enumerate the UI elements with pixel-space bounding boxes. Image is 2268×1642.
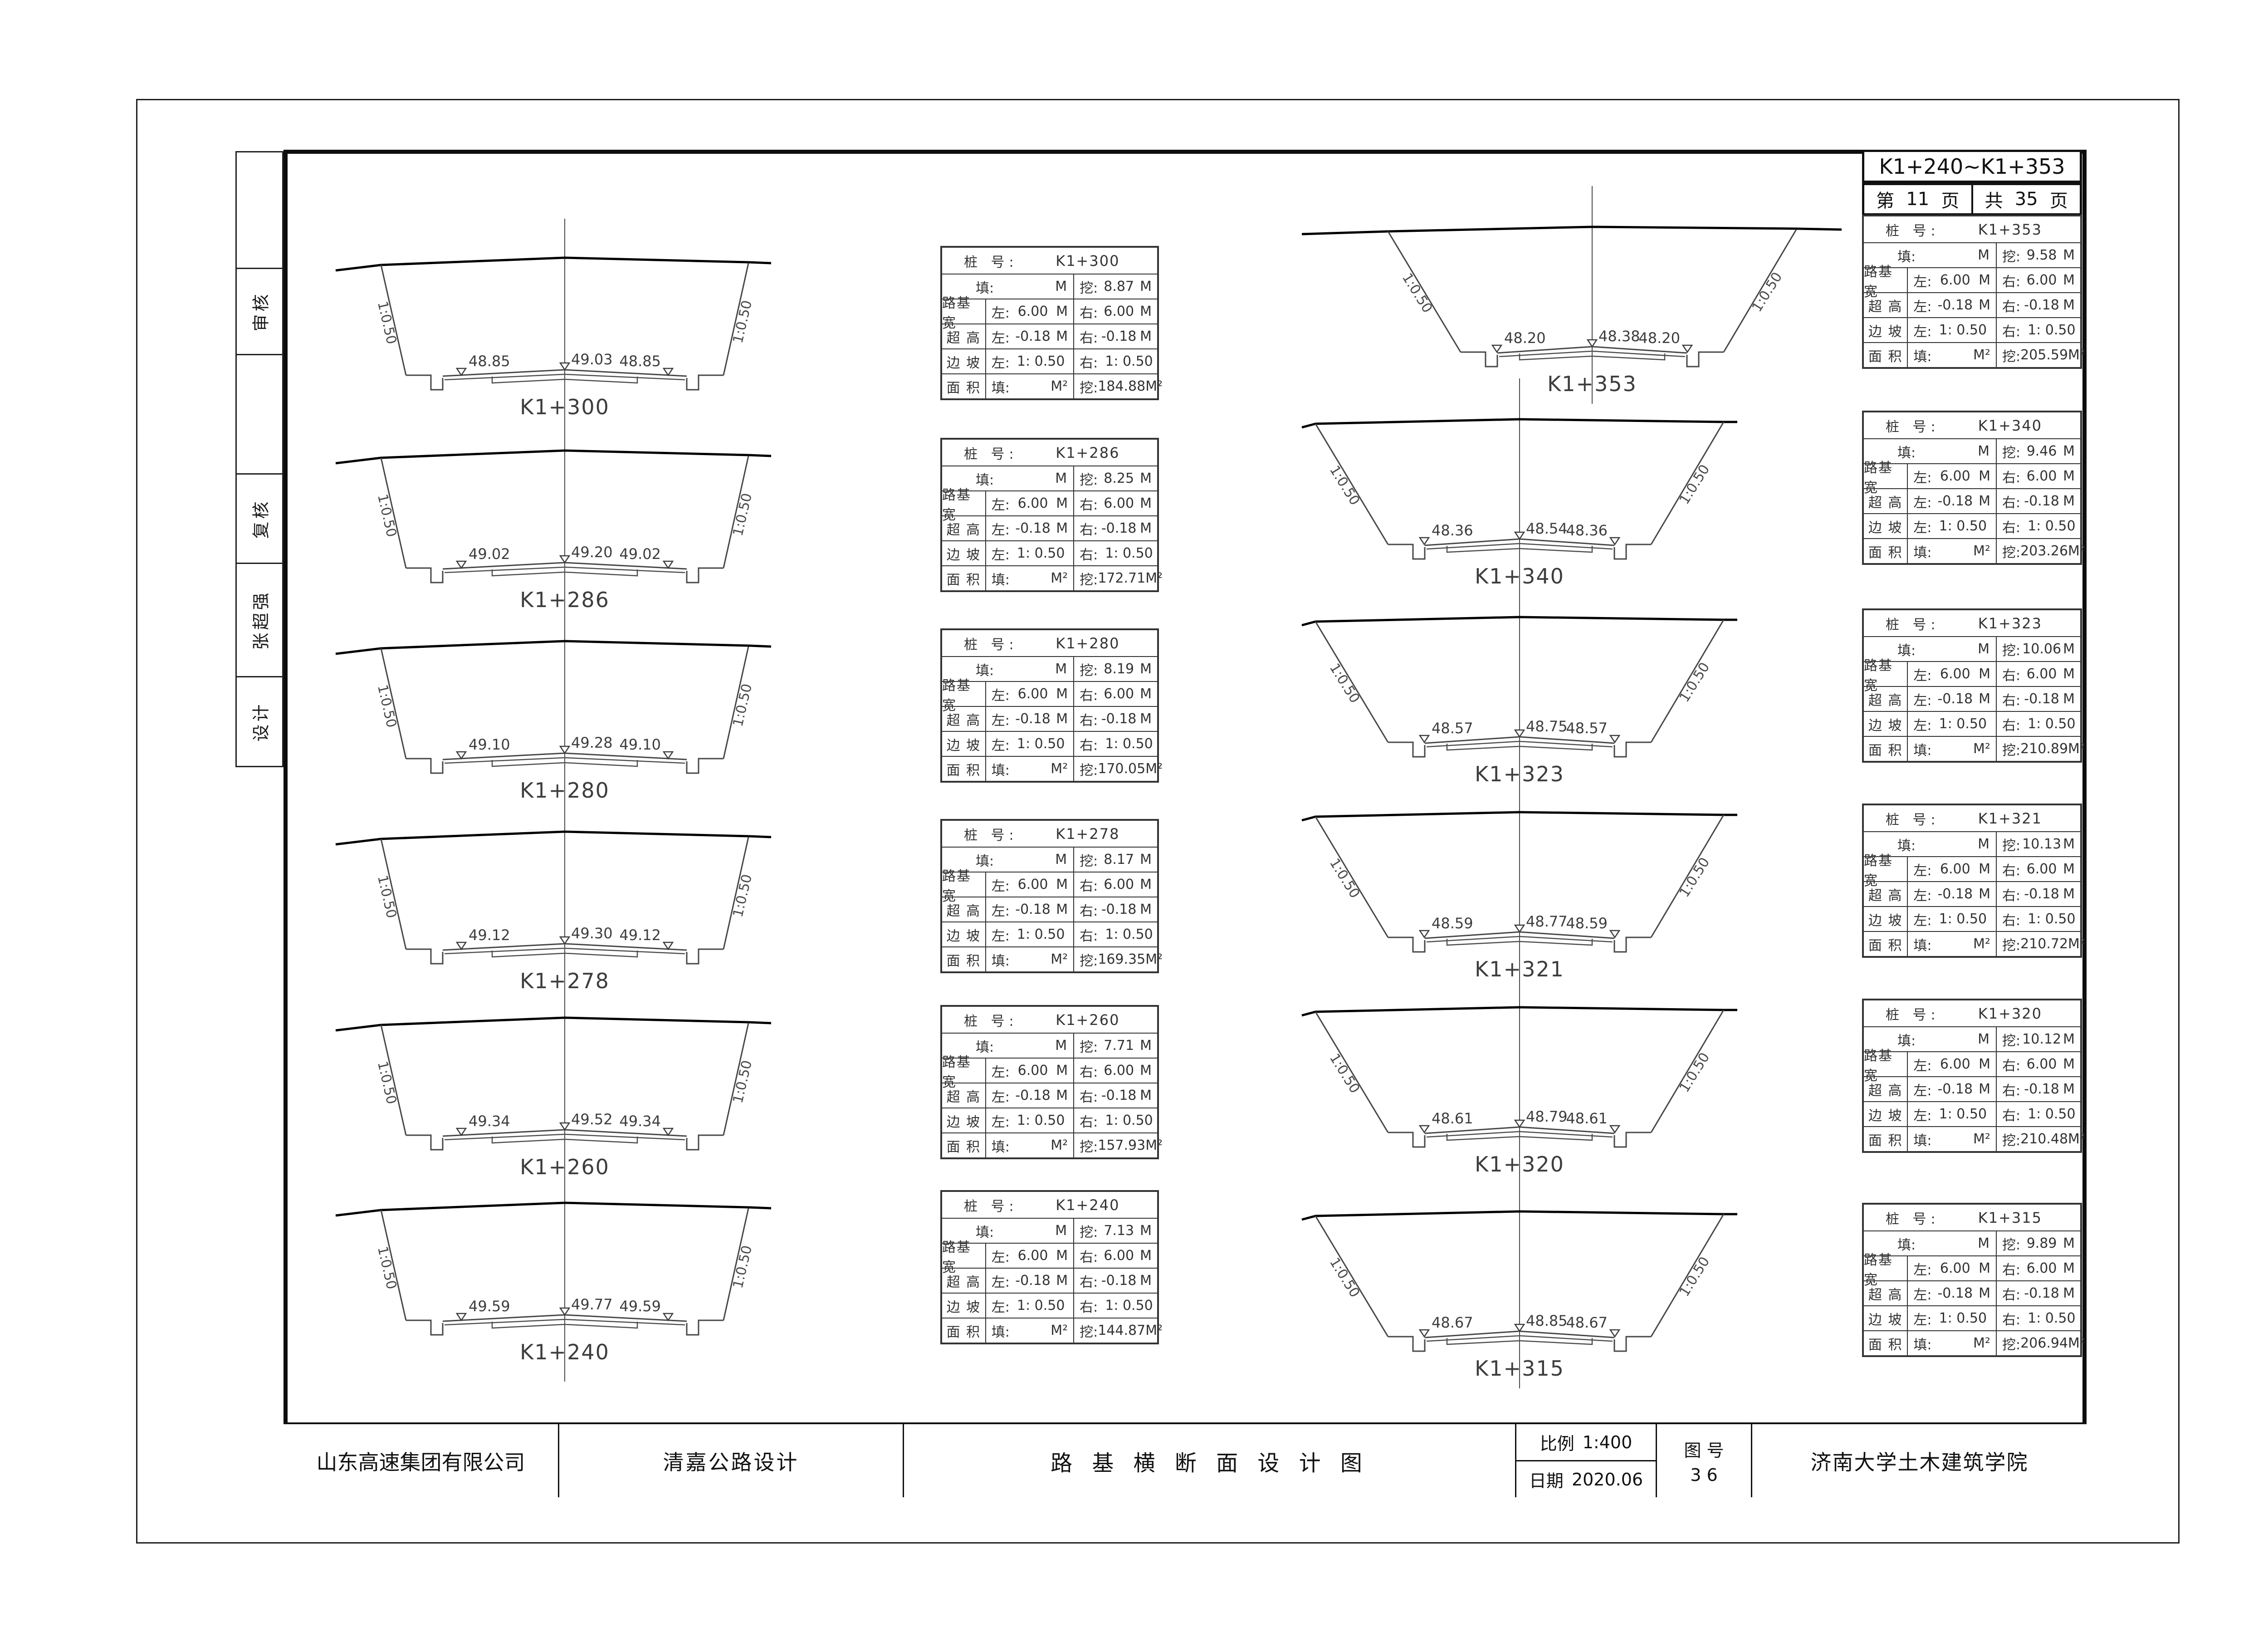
super-left-cell: 左: -0.18 M	[985, 1083, 1073, 1108]
side-ditch-right	[687, 759, 723, 773]
super-left-cell: 左: -0.18 M	[1907, 687, 1996, 711]
cross-section-wrap-K1+315: 48.67 48.85 48.67 1:0.50 1:0.50 K1+315	[1225, 1165, 1814, 1419]
area-row: 面 积 填: M² 挖: 172.71 M²	[942, 565, 1157, 590]
width-right-cell: 右: 6.00 M	[1996, 662, 2080, 686]
scale-label: 比例	[1540, 1430, 1574, 1455]
station-value: K1+260	[1018, 1011, 1157, 1029]
slope-row: 边 坡 左: 1: 0.50 右: 1: 0.50	[1864, 1305, 2080, 1330]
superelevation-row: 超 高 左: -0.18 M 右: -0.18 M	[942, 323, 1157, 348]
slope-ratio-left: 1:0.50	[374, 300, 400, 346]
scale-value: 1:400	[1583, 1432, 1633, 1452]
slope-ratio-right: 1:0.50	[730, 299, 755, 345]
side-ditch-left	[406, 759, 443, 773]
side-ditch-left	[406, 949, 443, 964]
level-mark-icon	[1610, 931, 1619, 937]
elevation-right: 48.67	[1566, 1314, 1608, 1331]
elevation-right: 49.59	[619, 1298, 661, 1315]
super-right-cell: 右: -0.18 M	[1073, 324, 1157, 348]
station-row: 桩 号: K1+300	[942, 248, 1157, 274]
cut-value: 8.87	[1098, 279, 1140, 294]
elevation-left: 48.20	[1504, 329, 1546, 347]
width-row: 路基宽 左: 6.00 M 右: 6.00 M	[1864, 661, 2080, 686]
station-label: 桩 号:	[1886, 1004, 1940, 1024]
ground-line	[336, 258, 771, 270]
elevation-left: 48.59	[1432, 915, 1473, 932]
superelevation-row: 超 高 左: -0.18 M 右: -0.18 M	[1864, 1076, 2080, 1101]
level-mark-icon	[457, 368, 466, 375]
station-label: 桩 号:	[1886, 416, 1940, 436]
slope-ratio-right: 1:0.50	[730, 1059, 755, 1105]
width-left-cell: 左: 6.00 M	[985, 1059, 1073, 1083]
area-fill-cell: 填: M²	[1907, 737, 1996, 761]
superelevation-row: 超 高 左: -0.18 M 右: -0.18 M	[942, 1083, 1157, 1108]
side-ditch-left	[1388, 1132, 1425, 1147]
area-fill-cell: 填: M²	[985, 947, 1073, 971]
side-ditch-left	[1461, 352, 1497, 367]
elevation-right: 49.02	[619, 545, 661, 563]
slope-left-cell: 左: 1: 0.50	[985, 922, 1073, 946]
slope-ratio-right: 1:0.50	[730, 1244, 755, 1290]
width-left-cell: 左: 6.00 M	[985, 1244, 1073, 1268]
width-row: 路基宽 左: 6.00 M 右: 6.00 M	[1864, 856, 2080, 881]
slope-right-cell: 右: 1: 0.50	[1996, 1102, 2080, 1126]
super-right-cell: 右: -0.18 M	[1073, 897, 1157, 921]
section-table-K1+353: 桩 号: K1+353 填: M 挖: 9.58 M 路基宽 左: 6.00 M…	[1862, 215, 2082, 369]
level-mark-icon	[664, 752, 673, 759]
super-left-cell: 左: -0.18 M	[985, 516, 1073, 540]
cut-value: 10.13	[2020, 836, 2063, 852]
section-table-K1+278: 桩 号: K1+278 填: M 挖: 8.17 M 路基宽 左: 6.00 M…	[940, 819, 1159, 973]
width-row: 路基宽 左: 6.00 M 右: 6.00 M	[942, 490, 1157, 515]
cut-cell: 挖: 10.12 M	[1996, 1027, 2080, 1051]
slope-ratio-right: 1:0.50	[1749, 270, 1786, 315]
cut-value: 9.58	[2020, 247, 2063, 263]
elevation-left: 48.61	[1432, 1110, 1473, 1127]
slope-right-cell: 右: 1: 0.50	[1996, 318, 2080, 342]
station-label: K1+315	[1475, 1356, 1564, 1381]
scale-date-cell: 比例 1:400 日期 2020.06	[1515, 1424, 1656, 1497]
side-ditch-left	[1388, 742, 1425, 757]
elevation-left: 48.85	[469, 353, 510, 370]
slope-row: 边 坡 左: 1: 0.50 右: 1: 0.50	[942, 1293, 1157, 1318]
super-left-cell: 左: -0.18 M	[1907, 293, 1996, 317]
elevation-center: 48.79	[1526, 1108, 1568, 1125]
elevation-center: 48.75	[1526, 718, 1568, 735]
width-right-cell: 右: 6.00 M	[1996, 857, 2080, 881]
width-right-cell: 右: 6.00 M	[1073, 491, 1157, 515]
station-row: 桩 号: K1+340	[1864, 412, 2080, 438]
station-label: 桩 号:	[964, 1010, 1018, 1030]
ground-line	[336, 641, 771, 654]
area-row: 面 积 填: M² 挖: 170.05 M²	[942, 756, 1157, 781]
area-cut-cell: 挖: 157.93 M²	[1073, 1133, 1157, 1157]
super-right-cell: 右: -0.18 M	[1996, 489, 2080, 513]
station-value: K1+240	[1018, 1196, 1157, 1214]
section-table-K1+280: 桩 号: K1+280 填: M 挖: 8.19 M 路基宽 左: 6.00 M…	[940, 628, 1159, 783]
station-value: K1+340	[1940, 417, 2080, 434]
width-left-cell: 左: 6.00 M	[1907, 662, 1996, 686]
elevation-right: 48.57	[1566, 720, 1608, 737]
cut-cell: 挖: 7.71 M	[1073, 1034, 1157, 1058]
area-row: 面 积 填: M² 挖: 210.72 M²	[1864, 931, 2080, 956]
section-table-K1+323: 桩 号: K1+323 填: M 挖: 10.06 M 路基宽 左: 6.00 …	[1862, 608, 2082, 763]
super-right-cell: 右: -0.18 M	[1996, 687, 2080, 711]
level-mark-icon	[664, 942, 673, 949]
elevation-left: 49.12	[469, 926, 510, 944]
slope-ratio-right: 1:0.50	[730, 682, 755, 728]
slope-left-cell: 左: 1: 0.50	[1907, 1306, 1996, 1330]
cut-value: 7.13	[1098, 1223, 1140, 1239]
side-ditch-right	[1614, 742, 1651, 757]
ground-line	[336, 832, 771, 844]
title-block: 山东高速集团有限公司 清嘉公路设计 路 基 横 断 面 设 计 图 比例 1:4…	[283, 1422, 2087, 1497]
width-right-cell: 右: 6.00 M	[1996, 464, 2080, 488]
section-table-K1+320: 桩 号: K1+320 填: M 挖: 10.12 M 路基宽 左: 6.00 …	[1862, 999, 2082, 1153]
area-fill-cell: 填: M²	[1907, 932, 1996, 956]
station-value: K1+315	[1940, 1209, 2080, 1226]
elevation-center: 49.77	[571, 1296, 613, 1313]
slope-left-cell: 左: 1: 0.50	[1907, 1102, 1996, 1126]
elevation-center: 48.54	[1526, 520, 1568, 537]
elevation-right: 49.10	[619, 736, 661, 753]
area-fill-cell: 填: M²	[1907, 1331, 1996, 1355]
cut-cell: 挖: 9.46 M	[1996, 439, 2080, 463]
level-mark-icon	[1515, 925, 1524, 932]
elevation-center: 48.77	[1526, 913, 1568, 930]
side-ditch-left	[406, 1320, 443, 1335]
slope-row: 边 坡 左: 1: 0.50 右: 1: 0.50	[1864, 317, 2080, 342]
slope-ratio-right: 1:0.50	[1677, 855, 1713, 900]
slope-left-cell: 左: 1: 0.50	[1907, 318, 1996, 342]
level-mark-icon	[560, 1308, 569, 1315]
slope-row: 边 坡 左: 1: 0.50 右: 1: 0.50	[942, 540, 1157, 565]
width-left-cell: 左: 6.00 M	[1907, 268, 1996, 292]
superelevation-row: 超 高 左: -0.18 M 右: -0.18 M	[1864, 488, 2080, 513]
station-value: K1+280	[1018, 635, 1157, 652]
level-mark-icon	[664, 1128, 673, 1135]
slope-ratio-left: 1:0.50	[374, 1060, 400, 1106]
elevation-left: 48.57	[1432, 720, 1473, 737]
institute-cell: 济南大学土木建筑学院	[1751, 1424, 2087, 1497]
station-label: 桩 号:	[964, 824, 1018, 844]
date-label: 日期	[1529, 1467, 1564, 1492]
slope-left-cell: 左: 1: 0.50	[1907, 907, 1996, 931]
area-row: 面 积 填: M² 挖: 203.26 M²	[1864, 538, 2080, 563]
level-mark-icon	[457, 561, 466, 568]
area-fill-cell: 填: M²	[985, 566, 1073, 590]
area-fill-cell: 填: M²	[1907, 1127, 1996, 1151]
slope-right-cell: 右: 1: 0.50	[1996, 712, 2080, 736]
super-left-cell: 左: -0.18 M	[985, 324, 1073, 348]
superelevation-row: 超 高 左: -0.18 M 右: -0.18 M	[1864, 292, 2080, 317]
elevation-left: 49.34	[469, 1113, 510, 1130]
side-ditch-right	[687, 1320, 723, 1335]
level-mark-icon	[560, 556, 569, 563]
width-right-cell: 右: 6.00 M	[1073, 872, 1157, 897]
slope-ratio-left: 1:0.50	[1326, 463, 1363, 508]
elevation-right: 48.59	[1566, 915, 1608, 932]
area-row: 面 积 填: M² 挖: 169.35 M²	[942, 946, 1157, 971]
slope-ratio-left: 1:0.50	[1399, 270, 1436, 316]
area-cut-cell: 挖: 184.88 M²	[1073, 374, 1157, 398]
width-row: 路基宽 左: 6.00 M 右: 6.00 M	[1864, 1051, 2080, 1076]
cut-cell: 挖: 8.19 M	[1073, 657, 1157, 681]
elevation-center: 49.03	[571, 351, 613, 368]
slope-left-cell: 左: 1: 0.50	[1907, 514, 1996, 538]
slope-ratio-right: 1:0.50	[1677, 660, 1713, 705]
cut-value: 9.89	[2020, 1235, 2063, 1251]
cut-cell: 挖: 10.13 M	[1996, 832, 2080, 856]
station-label: 桩 号:	[964, 251, 1018, 271]
page-info-row: 第 11 页 共 35 页	[1862, 183, 2082, 216]
station-value: K1+278	[1018, 825, 1157, 843]
ground-line	[336, 451, 771, 463]
level-mark-icon	[664, 561, 673, 568]
level-mark-icon	[560, 363, 569, 370]
slope-ratio-left: 1:0.50	[1326, 1255, 1363, 1300]
station-label: 桩 号:	[1886, 1208, 1940, 1228]
area-row: 面 积 填: M² 挖: 205.59 M²	[1864, 342, 2080, 367]
station-row: 桩 号: K1+320	[1864, 1000, 2080, 1026]
width-right-cell: 右: 6.00 M	[1996, 1256, 2080, 1280]
date-row: 日期 2020.06	[1516, 1461, 1656, 1497]
side-ditch-right	[1687, 352, 1724, 367]
cut-value: 8.19	[1098, 661, 1140, 677]
station-row: 桩 号: K1+286	[942, 440, 1157, 466]
superelevation-row: 超 高 左: -0.18 M 右: -0.18 M	[1864, 686, 2080, 711]
slope-right-cell: 右: 1: 0.50	[1073, 541, 1157, 565]
superelevation-row: 超 高 左: -0.18 M 右: -0.18 M	[942, 515, 1157, 540]
elevation-left: 49.59	[469, 1298, 510, 1315]
level-mark-icon	[1610, 1330, 1619, 1337]
elevation-center: 49.52	[571, 1111, 613, 1128]
level-mark-icon	[664, 1314, 673, 1320]
slope-left-cell: 左: 1: 0.50	[1907, 712, 1996, 736]
station-label: 桩 号:	[1886, 220, 1940, 240]
width-left-cell: 左: 6.00 M	[1907, 857, 1996, 881]
slope-left-cell: 左: 1: 0.50	[985, 349, 1073, 373]
area-cut-cell: 挖: 144.87 M²	[1073, 1319, 1157, 1343]
station-label: 桩 号:	[964, 1195, 1018, 1215]
ground-line	[1302, 227, 1842, 234]
slope-row: 边 坡 左: 1: 0.50 右: 1: 0.50	[1864, 906, 2080, 931]
station-value: K1+323	[1940, 615, 2080, 632]
width-row: 路基宽 左: 6.00 M 右: 6.00 M	[1864, 267, 2080, 292]
width-left-cell: 左: 6.00 M	[985, 491, 1073, 515]
side-ditch-left	[406, 1135, 443, 1150]
station-label: 桩 号:	[1886, 613, 1940, 633]
station-row: 桩 号: K1+260	[942, 1007, 1157, 1033]
level-mark-icon	[1610, 1126, 1619, 1132]
station-label: 桩 号:	[1886, 809, 1940, 828]
area-fill-cell: 填: M²	[1907, 343, 1996, 367]
elevation-center: 49.20	[571, 544, 613, 561]
level-mark-icon	[1515, 532, 1524, 539]
slope-ratio-left: 1:0.50	[1326, 856, 1363, 901]
elevation-right: 48.61	[1566, 1110, 1608, 1127]
sidebar-label: 审核	[247, 291, 272, 331]
level-mark-icon	[1492, 345, 1501, 352]
area-cut-cell: 挖: 210.48 M²	[1996, 1127, 2080, 1151]
station-range-box: K1+240~K1+353	[1862, 150, 2082, 183]
area-fill-cell: 填: M²	[985, 757, 1073, 781]
area-fill-cell: 填: M²	[1907, 539, 1996, 563]
station-row: 桩 号: K1+353	[1864, 216, 2080, 242]
slope-ratio-right: 1:0.50	[1677, 1254, 1713, 1299]
total-number: 35	[2015, 189, 2038, 210]
super-right-cell: 右: -0.18 M	[1996, 1077, 2080, 1101]
figure-number: 3 6	[1690, 1465, 1717, 1485]
area-fill-cell: 填: M²	[985, 1133, 1073, 1157]
side-ditch-right	[1614, 1132, 1651, 1147]
slope-right-cell: 右: 1: 0.50	[1996, 907, 2080, 931]
sidebar-label: 复核	[247, 499, 272, 539]
total-suffix: 页	[2050, 186, 2068, 212]
width-right-cell: 右: 6.00 M	[1073, 1059, 1157, 1083]
station-row: 桩 号: K1+321	[1864, 805, 2080, 831]
slope-ratio-right: 1:0.50	[1677, 462, 1713, 507]
station-value: K1+286	[1018, 444, 1157, 461]
level-mark-icon	[1420, 1330, 1429, 1337]
super-right-cell: 右: -0.18 M	[1996, 293, 2080, 317]
cut-value: 9.46	[2020, 443, 2063, 459]
side-ditch-right	[687, 568, 723, 583]
super-left-cell: 左: -0.18 M	[1907, 1281, 1996, 1305]
slope-ratio-left: 1:0.50	[1326, 661, 1363, 706]
superelevation-row: 超 高 左: -0.18 M 右: -0.18 M	[942, 706, 1157, 731]
cut-cell: 挖: 9.89 M	[1996, 1231, 2080, 1255]
width-row: 路基宽 左: 6.00 M 右: 6.00 M	[942, 872, 1157, 897]
level-mark-icon	[1420, 1126, 1429, 1132]
width-left-cell: 左: 6.00 M	[1907, 1052, 1996, 1076]
sidebar-label: 张超强	[247, 590, 272, 650]
superelevation-row: 超 高 左: -0.18 M 右: -0.18 M	[1864, 881, 2080, 906]
station-value: K1+321	[1940, 810, 2080, 827]
slope-row: 边 坡 左: 1: 0.50 右: 1: 0.50	[942, 348, 1157, 373]
section-table-K1+321: 桩 号: K1+321 填: M 挖: 10.13 M 路基宽 左: 6.00 …	[1862, 804, 2082, 958]
area-row: 面 积 填: M² 挖: 210.89 M²	[1864, 736, 2080, 761]
side-ditch-left	[1388, 937, 1425, 952]
area-cut-cell: 挖: 210.72 M²	[1996, 932, 2080, 956]
cut-value: 10.06	[2020, 641, 2063, 657]
station-value: K1+353	[1940, 221, 2080, 238]
elevation-right: 48.20	[1638, 329, 1680, 347]
station-range-label: K1+240~K1+353	[1879, 154, 2065, 179]
level-mark-icon	[664, 368, 673, 375]
section-table-K1+315: 桩 号: K1+315 填: M 挖: 9.89 M 路基宽 左: 6.00 M…	[1862, 1203, 2082, 1357]
super-right-cell: 右: -0.18 M	[1073, 1083, 1157, 1108]
slope-right-cell: 右: 1: 0.50	[1073, 1108, 1157, 1132]
cut-cell: 挖: 10.06 M	[1996, 637, 2080, 661]
area-cut-cell: 挖: 203.26 M²	[1996, 539, 2080, 563]
super-left-cell: 左: -0.18 M	[1907, 882, 1996, 906]
area-cut-cell: 挖: 172.71 M²	[1073, 566, 1157, 590]
cut-cell: 挖: 8.17 M	[1073, 848, 1157, 872]
width-right-cell: 右: 6.00 M	[1996, 1052, 2080, 1076]
section-table-K1+340: 桩 号: K1+340 填: M 挖: 9.46 M 路基宽 左: 6.00 M…	[1862, 411, 2082, 565]
area-cut-cell: 挖: 205.59 M²	[1996, 343, 2080, 367]
station-label: K1+240	[520, 1340, 610, 1364]
width-row: 路基宽 左: 6.00 M 右: 6.00 M	[942, 1243, 1157, 1268]
station-label: 桩 号:	[964, 633, 1018, 653]
cut-value: 7.71	[1098, 1038, 1140, 1054]
page-total-cell: 共 35 页	[1973, 185, 2080, 213]
elevation-right: 48.85	[619, 353, 661, 370]
area-row: 面 积 填: M² 挖: 206.94 M²	[1864, 1330, 2080, 1355]
date-value: 2020.06	[1572, 1470, 1643, 1490]
level-mark-icon	[1683, 345, 1692, 352]
level-mark-icon	[1420, 538, 1429, 544]
station-row: 桩 号: K1+323	[1864, 610, 2080, 636]
slope-ratio-right: 1:0.50	[730, 873, 755, 919]
width-left-cell: 左: 6.00 M	[985, 872, 1073, 897]
slope-left-cell: 左: 1: 0.50	[985, 1294, 1073, 1318]
area-fill-cell: 填: M²	[985, 374, 1073, 398]
station-row: 桩 号: K1+278	[942, 821, 1157, 847]
elevation-center: 48.38	[1598, 328, 1640, 345]
elevation-left: 48.67	[1432, 1314, 1473, 1331]
side-ditch-right	[687, 375, 723, 390]
elevation-left: 48.36	[1432, 522, 1473, 539]
slope-right-cell: 右: 1: 0.50	[1996, 1306, 2080, 1330]
slope-row: 边 坡 左: 1: 0.50 右: 1: 0.50	[942, 1108, 1157, 1132]
super-right-cell: 右: -0.18 M	[1996, 1281, 2080, 1305]
cut-cell: 挖: 8.87 M	[1073, 274, 1157, 299]
level-mark-icon	[1588, 340, 1597, 347]
superelevation-row: 超 高 左: -0.18 M 右: -0.18 M	[942, 1268, 1157, 1293]
slope-right-cell: 右: 1: 0.50	[1996, 514, 2080, 538]
level-mark-icon	[457, 752, 466, 759]
super-left-cell: 左: -0.18 M	[985, 897, 1073, 921]
level-mark-icon	[1610, 735, 1619, 742]
slope-row: 边 坡 左: 1: 0.50 右: 1: 0.50	[1864, 711, 2080, 736]
slope-right-cell: 右: 1: 0.50	[1073, 349, 1157, 373]
super-right-cell: 右: -0.18 M	[1073, 516, 1157, 540]
drawing-title-cell: 路 基 横 断 面 设 计 图	[903, 1424, 1515, 1497]
side-ditch-left	[406, 375, 443, 390]
elevation-left: 49.02	[469, 545, 510, 563]
elevation-right: 49.12	[619, 926, 661, 944]
side-ditch-right	[1614, 937, 1651, 952]
figure-label: 图 号	[1684, 1436, 1724, 1461]
width-row: 路基宽 左: 6.00 M 右: 6.00 M	[1864, 463, 2080, 488]
side-ditch-left	[1388, 1337, 1425, 1351]
width-right-cell: 右: 6.00 M	[1996, 268, 2080, 292]
width-left-cell: 左: 6.00 M	[985, 682, 1073, 706]
slope-left-cell: 左: 1: 0.50	[985, 732, 1073, 756]
level-mark-icon	[457, 942, 466, 949]
total-prefix: 共	[1985, 186, 2003, 212]
slope-right-cell: 右: 1: 0.50	[1073, 922, 1157, 946]
station-row: 桩 号: K1+280	[942, 630, 1157, 656]
section-table-K1+260: 桩 号: K1+260 填: M 挖: 7.71 M 路基宽 左: 6.00 M…	[940, 1005, 1159, 1159]
area-row: 面 积 填: M² 挖: 210.48 M²	[1864, 1126, 2080, 1151]
cut-value: 8.17	[1098, 852, 1140, 868]
width-row: 路基宽 左: 6.00 M 右: 6.00 M	[942, 681, 1157, 706]
slope-ratio-left: 1:0.50	[374, 683, 400, 729]
elevation-center: 49.28	[571, 734, 613, 751]
ground-line	[336, 1018, 771, 1030]
super-left-cell: 左: -0.18 M	[1907, 489, 1996, 513]
section-table-K1+286: 桩 号: K1+286 填: M 挖: 8.25 M 路基宽 左: 6.00 M…	[940, 438, 1159, 592]
elevation-right: 48.36	[1566, 522, 1608, 539]
cross-section-K1+315: 48.67 48.85 48.67 1:0.50 1:0.50 K1+315	[1225, 1165, 1814, 1419]
level-mark-icon	[560, 746, 569, 753]
slope-right-cell: 右: 1: 0.50	[1073, 1294, 1157, 1318]
scale-row: 比例 1:400	[1516, 1424, 1656, 1461]
slope-row: 边 坡 左: 1: 0.50 右: 1: 0.50	[942, 921, 1157, 946]
area-cut-cell: 挖: 210.89 M²	[1996, 737, 2080, 761]
